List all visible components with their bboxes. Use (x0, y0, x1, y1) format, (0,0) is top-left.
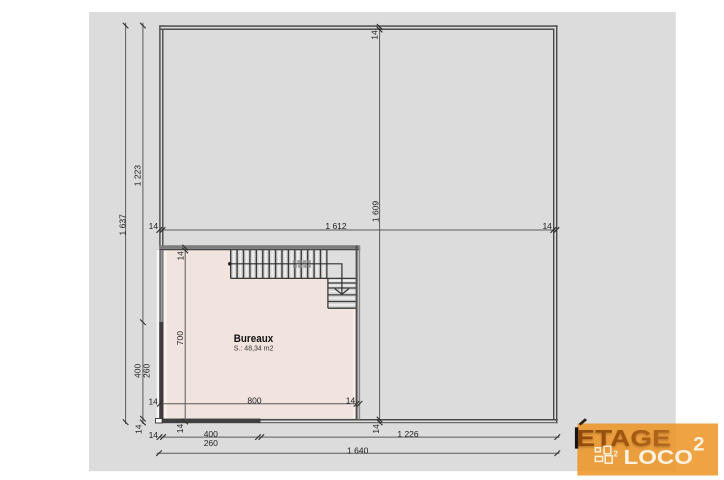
svg-text:14: 14 (370, 30, 380, 40)
svg-text:14: 14 (346, 395, 356, 405)
svg-text:260: 260 (204, 438, 218, 448)
svg-text:1 609: 1 609 (370, 201, 380, 223)
svg-text:14: 14 (371, 424, 381, 434)
svg-text:1 640: 1 640 (347, 445, 369, 455)
svg-text:S.: 48,34 m2: S.: 48,34 m2 (234, 345, 274, 352)
svg-text:14: 14 (149, 430, 159, 440)
svg-text:14: 14 (134, 424, 144, 434)
svg-text:14: 14 (149, 221, 159, 231)
svg-text:1 637: 1 637 (117, 214, 127, 236)
svg-text:1 226: 1 226 (397, 429, 419, 439)
svg-text:14: 14 (542, 221, 552, 231)
svg-text:Bureaux: Bureaux (234, 333, 273, 345)
svg-text:1 223: 1 223 (132, 165, 142, 187)
svg-text:LOCO: LOCO (624, 447, 694, 469)
svg-text:700: 700 (175, 331, 185, 345)
svg-text:14: 14 (175, 424, 185, 434)
svg-text:2: 2 (693, 434, 704, 455)
svg-text:2: 2 (614, 449, 619, 458)
svg-text:14: 14 (148, 396, 158, 406)
svg-text:1 612: 1 612 (325, 221, 347, 231)
svg-text:800: 800 (247, 396, 261, 406)
svg-text:14: 14 (175, 251, 185, 261)
svg-text:260: 260 (141, 364, 151, 378)
